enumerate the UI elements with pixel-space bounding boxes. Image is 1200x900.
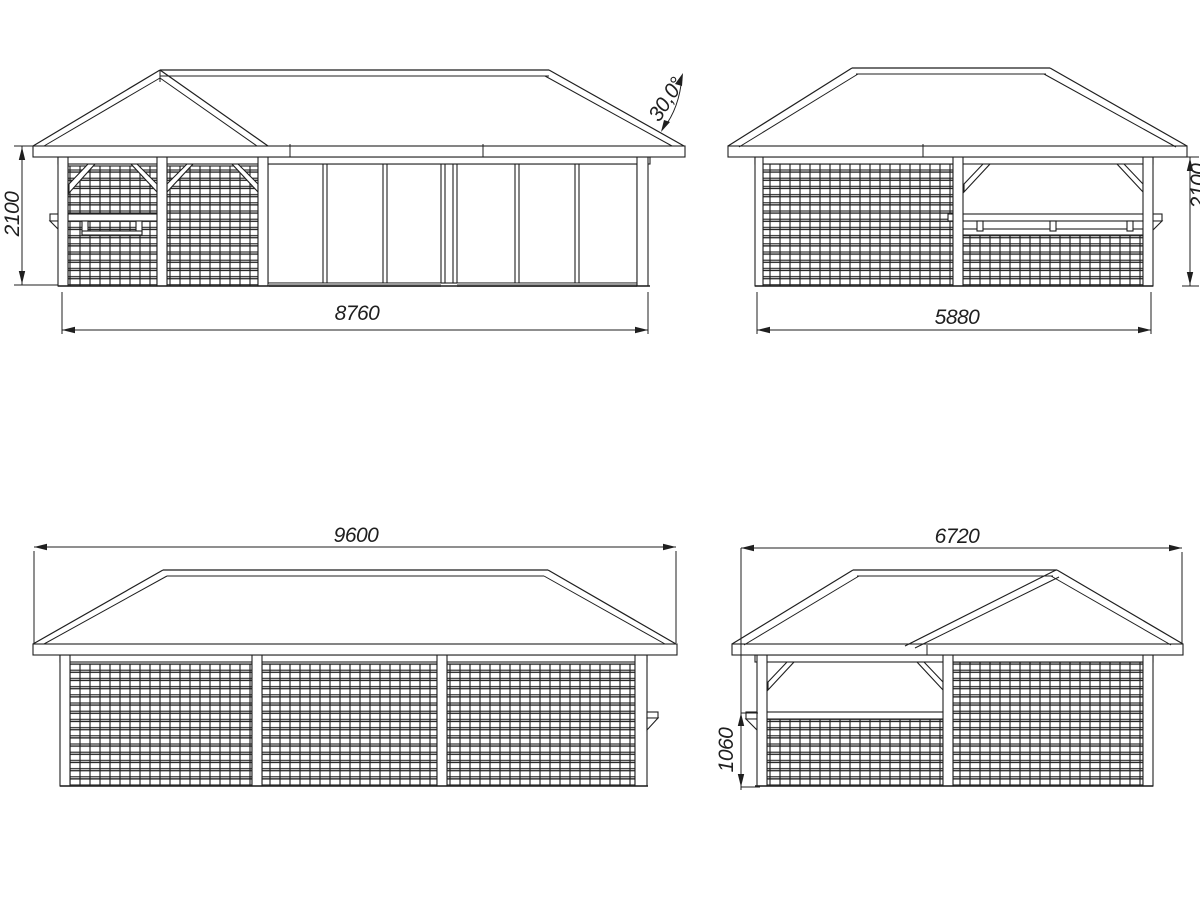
eave-fascia <box>33 644 677 655</box>
dim-label-rear-width: 9600 <box>334 524 379 548</box>
hip-edge <box>732 570 853 644</box>
counter-support <box>1050 221 1056 231</box>
counter-bracket <box>647 718 658 730</box>
post <box>58 157 68 286</box>
eave-fascia <box>728 146 1187 157</box>
roof-width-dimension <box>34 544 676 643</box>
glass-mullion <box>515 164 519 283</box>
slat-panel <box>262 664 437 786</box>
side-elevation-gable-view <box>732 545 1183 790</box>
hip-edge-inner <box>1051 576 1171 645</box>
dim-label-front-width: 8760 <box>335 302 380 326</box>
slat-panel <box>763 164 953 286</box>
dim-label-side-height: 2100 <box>1187 164 1200 209</box>
gable-bargeboard <box>160 70 268 146</box>
post <box>157 157 167 286</box>
dim-label-side-depth: 5880 <box>935 306 980 330</box>
eave-fascia <box>732 644 1183 655</box>
hip-edge-inner <box>44 576 167 644</box>
eave-fascia <box>33 146 685 157</box>
gable-bargeboard <box>33 70 160 146</box>
post <box>258 157 268 286</box>
post <box>953 157 963 286</box>
glass-mullion <box>323 164 327 283</box>
balustrade-rail <box>765 712 945 719</box>
hip-edge <box>728 68 852 146</box>
counter-support <box>1127 221 1133 231</box>
roof-depth-dimension <box>741 545 1182 643</box>
gable-bargeboard-inner <box>915 577 1059 648</box>
post <box>755 157 763 286</box>
gable-bargeboard-inner <box>44 78 160 146</box>
dim-label-gable-depth: 6720 <box>935 525 980 549</box>
glass-mullion <box>383 164 387 283</box>
balustrade-slats <box>963 235 1143 286</box>
slat-panel <box>953 662 1143 786</box>
slat-panel <box>447 664 635 786</box>
post <box>437 655 447 786</box>
wall-top-beam <box>60 655 647 662</box>
post <box>943 655 953 786</box>
post <box>635 655 647 786</box>
gable-bargeboard-inner <box>160 78 257 146</box>
dim-label-front-height: 2100 <box>1 192 25 237</box>
front-elevation-view <box>14 70 685 334</box>
corner-brace <box>917 662 943 690</box>
glass-mullion <box>441 164 445 283</box>
balustrade-slats <box>767 719 943 786</box>
slat-panel <box>70 664 252 786</box>
counter-support <box>977 221 983 231</box>
technical-drawing-svg <box>0 0 1200 900</box>
dim-label-counter-height: 1060 <box>715 728 739 773</box>
gable-bargeboard <box>905 570 1056 646</box>
slat-panel <box>68 166 157 286</box>
hip-edge <box>1057 570 1183 644</box>
corner-brace <box>964 164 990 192</box>
hip-edge-inner <box>739 74 858 147</box>
corner-brace <box>768 662 794 690</box>
bar-counter <box>948 214 1162 221</box>
hip-edge <box>33 570 163 644</box>
hip-edge-inner <box>1044 74 1176 147</box>
wall-top-beam <box>755 655 1153 662</box>
counter-end <box>647 712 658 718</box>
post <box>252 655 262 786</box>
post <box>1143 655 1153 786</box>
slat-panel <box>167 166 258 286</box>
side-elevation-bar-view <box>728 68 1199 334</box>
glass-mullion <box>575 164 579 283</box>
cad-drawing-canvas: 2100 8760 30,0° 5880 2100 9600 6720 1060 <box>0 0 1200 900</box>
hip-edge-inner <box>544 576 665 644</box>
hip-edge-inner <box>744 576 859 645</box>
post <box>1143 157 1153 286</box>
hip-edge <box>1050 68 1187 146</box>
corner-brace <box>1117 164 1143 192</box>
post <box>757 655 767 786</box>
post <box>637 157 648 286</box>
counter-rail <box>82 231 142 235</box>
glass-mullion <box>453 164 457 283</box>
counter-bracket <box>746 719 758 731</box>
wall-top-beam <box>58 157 650 164</box>
rear-elevation-view <box>33 544 677 786</box>
hip-edge <box>548 570 676 644</box>
post <box>60 655 70 786</box>
